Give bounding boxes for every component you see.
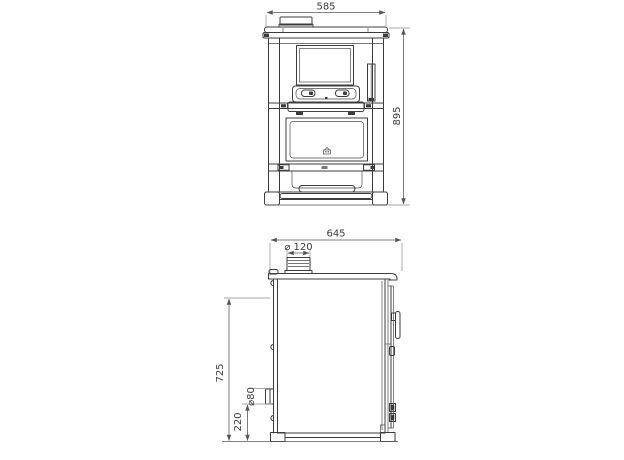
side-base	[271, 433, 396, 442]
control-tray	[288, 86, 364, 115]
rear-outlet-diameter-label: ⌀80	[246, 387, 257, 406]
stove-technical-drawing: 585 895	[0, 0, 624, 460]
oven-door	[286, 118, 368, 161]
front-width-label: 585	[316, 2, 335, 13]
ash-drawer-plinth	[271, 171, 382, 192]
drawing-svg: 585 895	[0, 0, 624, 460]
front-height-label: 895	[392, 106, 403, 125]
front-mid-band	[269, 103, 384, 109]
front-base	[265, 192, 388, 205]
outlet-height-label: 725	[215, 363, 226, 382]
front-flue-collar	[279, 17, 313, 27]
side-depth-label: 645	[326, 229, 345, 240]
side-body	[271, 279, 388, 433]
front-view: 585 895	[263, 2, 410, 206]
side-door-edge	[381, 286, 401, 433]
flue-diameter-label: ⌀ 120	[284, 242, 312, 253]
brand-emblem	[324, 148, 331, 155]
front-height-dimension: 895	[385, 28, 410, 205]
front-top-plate	[263, 27, 389, 38]
side-top-plate	[269, 270, 398, 281]
front-lower-band	[269, 164, 384, 171]
front-width-dimension: 585	[266, 2, 386, 28]
rear-outlet-diameter-dimension: ⌀80	[246, 387, 272, 406]
side-view: 645 ⌀ 120	[215, 229, 402, 442]
flue-diameter-dimension: ⌀ 120	[284, 242, 312, 257]
rear-outlet-height-label: 220	[233, 412, 244, 431]
firebox-door-window	[297, 46, 354, 86]
rear-outlet-height-dimension: 220	[233, 404, 272, 441]
side-flue-collar	[285, 258, 312, 274]
rear-outlet-stub	[266, 389, 274, 404]
air-control-slot	[368, 64, 376, 101]
door-handle	[396, 312, 401, 339]
